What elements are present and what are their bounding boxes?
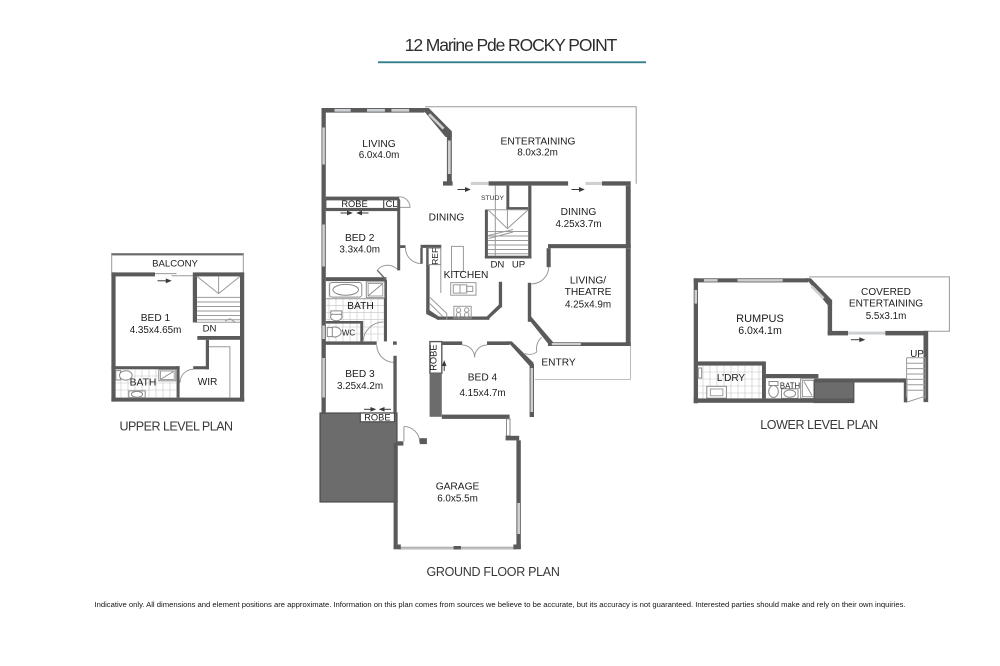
svg-text:UP: UP: [512, 259, 525, 270]
svg-text:DN: DN: [203, 324, 217, 335]
svg-text:LOWER LEVEL PLAN: LOWER LEVEL PLAN: [760, 418, 878, 432]
svg-text:LIVING/: LIVING/: [570, 276, 606, 287]
svg-text:12 Marine Pde ROCKY POINT: 12 Marine Pde ROCKY POINT: [405, 35, 618, 55]
svg-text:DINING: DINING: [561, 207, 597, 218]
svg-text:3.25x4.2m: 3.25x4.2m: [337, 381, 383, 392]
svg-text:REF: REF: [430, 248, 440, 265]
svg-text:5.5x3.1m: 5.5x3.1m: [866, 311, 907, 322]
svg-text:UP: UP: [910, 349, 924, 360]
svg-text:4.25x4.9m: 4.25x4.9m: [565, 300, 611, 311]
svg-text:UPPER LEVEL PLAN: UPPER LEVEL PLAN: [119, 420, 233, 434]
svg-text:WIR: WIR: [198, 377, 218, 388]
svg-text:8.0x3.2m: 8.0x3.2m: [517, 147, 558, 158]
svg-text:RUMPUS: RUMPUS: [736, 313, 784, 325]
svg-text:STUDY: STUDY: [481, 195, 505, 202]
svg-text:BATH: BATH: [347, 301, 374, 312]
svg-text:KITCHEN: KITCHEN: [444, 270, 489, 281]
svg-text:BED 4: BED 4: [468, 373, 498, 384]
svg-text:BATH: BATH: [130, 378, 157, 389]
svg-text:Indicative only. All dimension: Indicative only. All dimensions and elem…: [94, 600, 905, 609]
svg-text:ROBE: ROBE: [341, 199, 367, 209]
svg-text:THEATRE: THEATRE: [565, 287, 612, 298]
svg-text:BED 2: BED 2: [345, 233, 375, 244]
svg-text:DINING: DINING: [429, 212, 465, 223]
svg-text:COVERED: COVERED: [861, 287, 911, 298]
svg-text:ROBE: ROBE: [428, 344, 438, 370]
svg-text:BED 3: BED 3: [345, 369, 375, 380]
svg-text:BED 1: BED 1: [141, 313, 171, 324]
svg-text:CL: CL: [386, 199, 398, 209]
svg-text:GROUND FLOOR PLAN: GROUND FLOOR PLAN: [426, 565, 559, 579]
svg-text:ENTERTAINING: ENTERTAINING: [501, 136, 576, 147]
svg-text:4.25x3.7m: 4.25x3.7m: [555, 219, 601, 230]
svg-text:6.0x4.0m: 6.0x4.0m: [359, 150, 400, 161]
svg-text:DN: DN: [490, 259, 504, 270]
svg-text:ENTERTAINING: ENTERTAINING: [849, 299, 923, 310]
svg-text:BATH: BATH: [780, 381, 800, 390]
svg-text:ROBE: ROBE: [364, 412, 390, 422]
svg-text:L’DRY: L’DRY: [717, 373, 745, 384]
svg-text:6.0x4.1m: 6.0x4.1m: [738, 325, 782, 337]
svg-text:BALCONY: BALCONY: [152, 258, 198, 269]
svg-text:WC: WC: [342, 329, 356, 338]
svg-text:4.15x4.7m: 4.15x4.7m: [459, 388, 505, 399]
svg-text:ENTRY: ENTRY: [541, 357, 576, 368]
svg-text:6.0x5.5m: 6.0x5.5m: [437, 494, 478, 505]
svg-text:LIVING: LIVING: [362, 139, 395, 150]
svg-text:4.35x4.65m: 4.35x4.65m: [130, 325, 182, 336]
svg-text:GARAGE: GARAGE: [436, 482, 480, 493]
svg-text:3.3x4.0m: 3.3x4.0m: [339, 244, 380, 255]
